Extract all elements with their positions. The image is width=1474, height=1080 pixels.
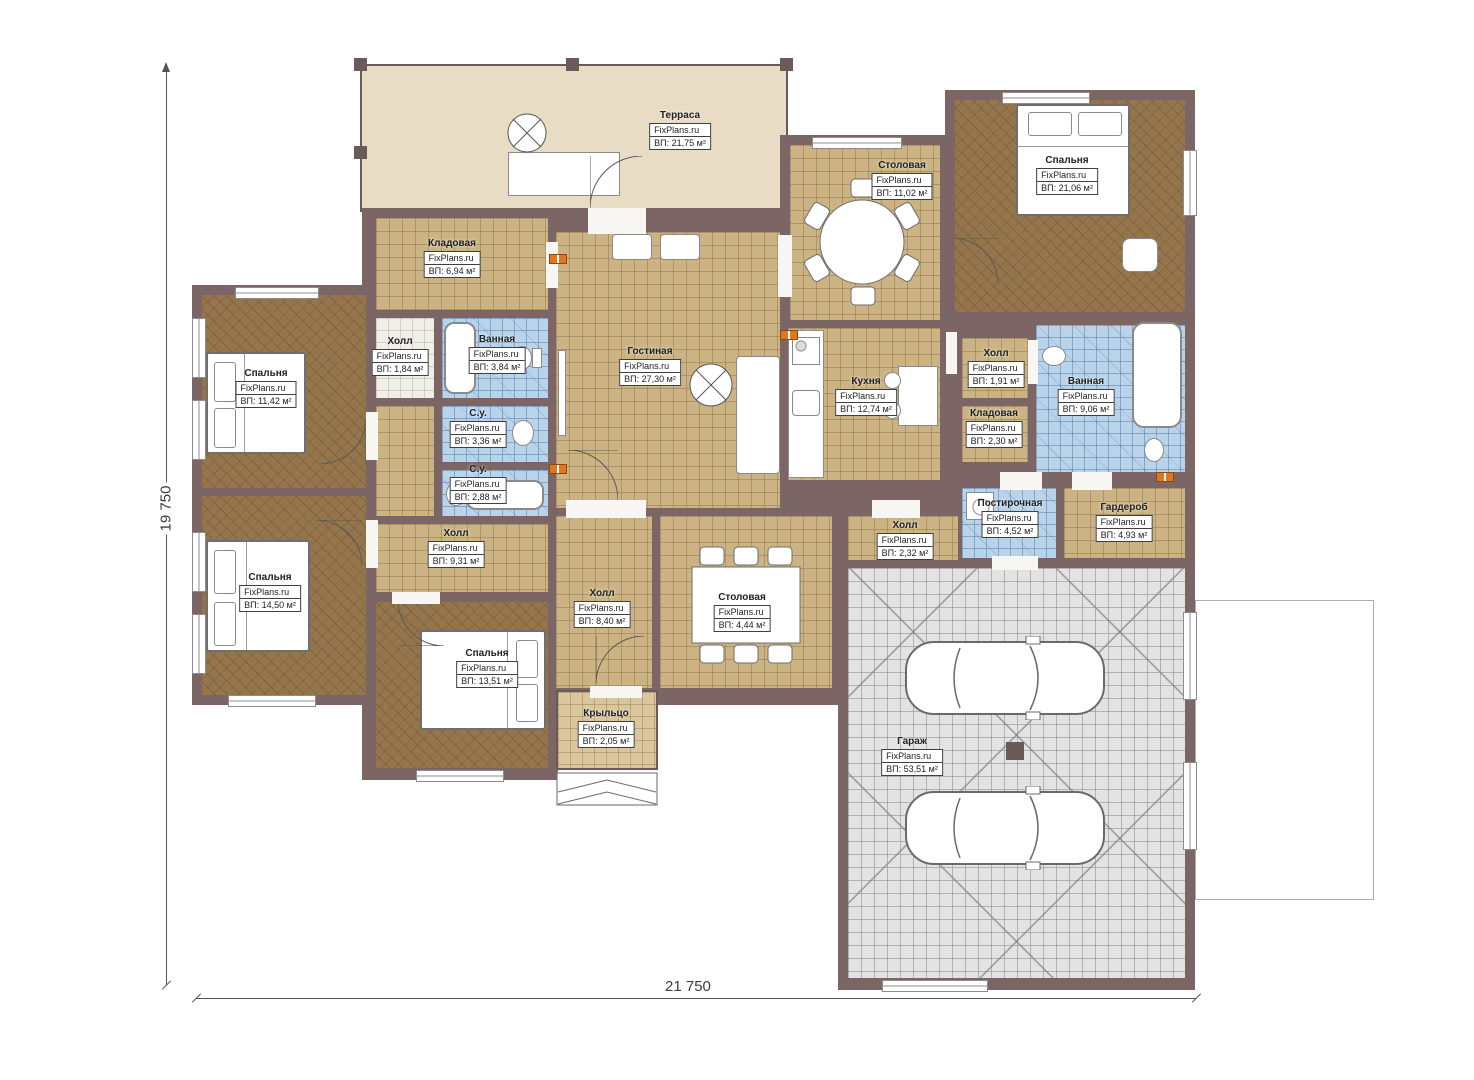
window bbox=[1183, 150, 1197, 216]
floor-plan: Терраса FixPlans.ruВП: 21,75 м² Столовая… bbox=[0, 0, 1474, 1080]
window bbox=[192, 318, 206, 378]
window bbox=[812, 137, 902, 149]
corridor-floor bbox=[376, 406, 434, 516]
sink-basin-icon bbox=[1042, 346, 1066, 366]
window bbox=[192, 614, 206, 674]
door-arc bbox=[568, 450, 618, 500]
window bbox=[192, 532, 206, 592]
door-opening bbox=[566, 500, 646, 518]
ceiling-fan-icon bbox=[506, 112, 548, 154]
terrace-column bbox=[780, 58, 793, 71]
room-label-storage-1: Кладовая FixPlans.ruВП: 6,94 м² bbox=[424, 238, 481, 278]
armchair-icon bbox=[660, 234, 700, 260]
room-label-bedroom-3: Спальня FixPlans.ruВП: 13,51 м² bbox=[456, 648, 518, 688]
dimension-label-left: 19 750 bbox=[157, 483, 174, 535]
door-opening bbox=[1000, 472, 1042, 490]
door-opening bbox=[588, 208, 646, 234]
door-opening bbox=[872, 500, 920, 518]
door-arc bbox=[320, 418, 366, 464]
garage-pillar bbox=[1006, 742, 1024, 760]
room-label-hall-4: Холл FixPlans.ruВП: 8,40 м² bbox=[574, 588, 631, 628]
sink-icon bbox=[792, 390, 820, 416]
room-label-porch: Крыльцо FixPlans.ruВП: 2,05 м² bbox=[578, 708, 635, 748]
toilet-icon bbox=[512, 420, 534, 446]
room-label-hall-5: Холл FixPlans.ruВП: 2,32 м² bbox=[877, 520, 934, 560]
toilet-tank bbox=[532, 348, 542, 368]
kitchen-table-icon bbox=[898, 366, 938, 426]
ceiling-fan-icon bbox=[688, 362, 734, 408]
dimension-line-bottom bbox=[196, 998, 1196, 999]
tv-icon bbox=[558, 350, 566, 436]
window bbox=[416, 770, 504, 782]
room-label-bedroom-tr: Спальня FixPlans.ruВП: 21,06 м² bbox=[1036, 155, 1098, 195]
vent-icon bbox=[1156, 472, 1174, 482]
car-icon bbox=[902, 786, 1110, 870]
room-label-laundry: Постирочная FixPlans.ruВП: 4,52 м² bbox=[978, 498, 1043, 538]
door-arc bbox=[590, 156, 642, 208]
room-label-wc-2: С.у. FixPlans.ruВП: 2,88 м² bbox=[450, 464, 507, 504]
room-label-garage: Гараж FixPlans.ruВП: 53,51 м² bbox=[881, 736, 943, 776]
window bbox=[1002, 92, 1090, 104]
toilet-icon bbox=[1144, 438, 1164, 462]
car-icon bbox=[902, 636, 1110, 720]
room-label-storage-2: Кладовая FixPlans.ruВП: 2,30 м² bbox=[966, 408, 1023, 448]
terrace-column bbox=[354, 146, 367, 159]
garage-door-opening bbox=[1183, 612, 1197, 700]
armchair-icon bbox=[612, 234, 652, 260]
room-label-bath-2: Ванная FixPlans.ruВП: 9,06 м² bbox=[1058, 376, 1115, 416]
room-label-wardrobe: Гардероб FixPlans.ruВП: 4,93 м² bbox=[1096, 502, 1153, 542]
dimension-label-bottom: 21 750 bbox=[662, 978, 714, 995]
terrace-column bbox=[354, 58, 367, 71]
door-opening bbox=[1072, 472, 1112, 490]
room-label-bath-1: Ванная FixPlans.ruВП: 3,84 м² bbox=[469, 334, 526, 374]
door-opening bbox=[992, 556, 1038, 570]
window bbox=[192, 400, 206, 460]
room-label-dining-top: Столовая FixPlans.ruВП: 11,02 м² bbox=[871, 160, 932, 200]
door-opening bbox=[366, 412, 378, 460]
room-label-living: Гостиная FixPlans.ruВП: 27,30 м² bbox=[619, 346, 681, 386]
window bbox=[235, 287, 319, 299]
door-arc bbox=[316, 520, 362, 566]
door-opening bbox=[590, 686, 642, 698]
vent-icon bbox=[549, 254, 567, 264]
porch-steps bbox=[556, 772, 658, 806]
vent-icon bbox=[549, 464, 567, 474]
room-label-bedroom-2: Спальня FixPlans.ruВП: 14,50 м² bbox=[239, 572, 301, 612]
door-opening bbox=[546, 242, 558, 288]
door-opening bbox=[946, 332, 957, 374]
sofa-icon bbox=[736, 356, 780, 474]
door-arc bbox=[952, 238, 998, 284]
stove-icon bbox=[792, 337, 820, 365]
armchair-icon bbox=[1122, 238, 1158, 272]
driveway-apron bbox=[1195, 600, 1374, 900]
window bbox=[882, 980, 988, 992]
terrace-column bbox=[566, 58, 579, 71]
garage-door-opening bbox=[1183, 762, 1197, 850]
room-label-dining-bot: Столовая FixPlans.ruВП: 4,44 м² bbox=[714, 592, 771, 632]
room-label-hall-1: Холл FixPlans.ruВП: 1,84 м² bbox=[372, 336, 429, 376]
door-opening bbox=[1028, 340, 1038, 384]
door-opening bbox=[366, 520, 378, 568]
room-label-bedroom-1: Спальня FixPlans.ruВП: 11,42 м² bbox=[235, 368, 296, 408]
door-opening bbox=[778, 235, 792, 297]
room-label-hall-3: Холл FixPlans.ruВП: 9,31 м² bbox=[428, 528, 485, 568]
door-arc bbox=[596, 636, 644, 684]
door-opening bbox=[392, 592, 440, 604]
room-label-wc-1: С.у. FixPlans.ruВП: 3,36 м² bbox=[450, 408, 507, 448]
dimension-arrow bbox=[162, 62, 170, 72]
bathtub-icon bbox=[1132, 322, 1182, 428]
vent-icon bbox=[780, 330, 798, 340]
room-label-terrace: Терраса FixPlans.ruВП: 21,75 м² bbox=[649, 110, 711, 150]
door-arc bbox=[398, 600, 444, 646]
window bbox=[228, 695, 316, 707]
room-label-hall-2: Холл FixPlans.ruВП: 1,91 м² bbox=[968, 348, 1025, 388]
room-label-kitchen: Кухня FixPlans.ruВП: 12,74 м² bbox=[835, 376, 897, 416]
